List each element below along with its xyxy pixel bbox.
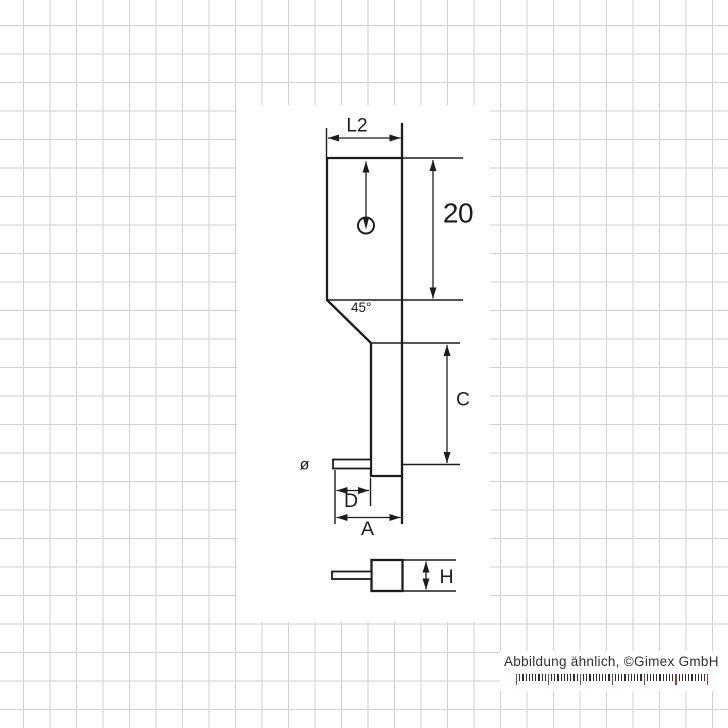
ruler-minor-tick [679, 674, 680, 681]
grid-background: L2 20 45° C ø D A H Abbildung ähnlich, ©… [0, 0, 728, 728]
caption-text: Abbildung ähnlich, ©Gimex GmbH [504, 654, 719, 669]
ruler-minor-tick [682, 674, 683, 681]
ruler-minor-tick [519, 674, 520, 681]
ruler-minor-tick [634, 674, 635, 681]
ruler-minor-tick [551, 674, 552, 681]
scale-ruler [516, 674, 709, 685]
ruler-minor-tick [522, 674, 523, 681]
dim-label-l2: L2 [346, 116, 367, 137]
ruler-minor-tick [602, 674, 603, 681]
ruler-minor-tick [593, 674, 594, 681]
ruler-minor-tick [656, 674, 657, 681]
ruler-minor-tick [631, 674, 632, 681]
ruler-minor-tick [561, 674, 562, 681]
technical-drawing: L2 20 45° C ø D A H [0, 0, 728, 728]
dim-label-h: H [439, 566, 453, 588]
dim-label-a: A [361, 518, 374, 540]
ruler-minor-tick [666, 674, 667, 681]
ruler-minor-tick [545, 674, 546, 681]
ruler-minor-tick [535, 674, 536, 681]
ruler-minor-tick [698, 674, 699, 681]
ruler-minor-tick [538, 674, 539, 681]
ruler-minor-tick [624, 674, 625, 681]
ruler-minor-tick [577, 674, 578, 681]
ruler-minor-tick [653, 674, 654, 681]
ruler-minor-tick [650, 674, 651, 681]
dim-label-45deg: 45° [351, 300, 371, 315]
ruler-minor-tick [688, 674, 689, 681]
ruler-minor-tick [640, 674, 641, 681]
ruler-minor-tick [573, 674, 574, 681]
dim-label-20: 20 [443, 198, 473, 229]
ruler-minor-tick [526, 674, 527, 681]
ruler-minor-tick [618, 674, 619, 681]
ruler-minor-tick [701, 674, 702, 681]
ruler-minor-tick [557, 674, 558, 681]
ruler-minor-tick [589, 674, 590, 681]
ruler-minor-tick [672, 674, 673, 681]
ruler-major-tick [644, 674, 645, 685]
diameter-symbol: ø [300, 457, 310, 474]
ruler-minor-tick [583, 674, 584, 681]
ruler-minor-tick [637, 674, 638, 681]
ruler-minor-tick [567, 674, 568, 681]
ruler-major-tick [516, 674, 517, 685]
dim-label-c: C [456, 390, 470, 411]
ruler-minor-tick [621, 674, 622, 681]
ruler-minor-tick [695, 674, 696, 681]
ruler-minor-tick [685, 674, 686, 681]
ruler-minor-tick [663, 674, 664, 681]
ruler-major-tick [675, 674, 676, 685]
measuring-point-arrowhead-icon [363, 219, 369, 230]
ruler-minor-tick [596, 674, 597, 681]
ruler-minor-tick [599, 674, 600, 681]
tip-pin-outline [332, 572, 372, 580]
ruler-minor-tick [659, 674, 660, 681]
ruler-minor-tick [542, 674, 543, 681]
ruler-minor-tick [586, 674, 587, 681]
tip-body-outline [372, 560, 403, 591]
ruler-minor-tick [691, 674, 692, 681]
ruler-minor-tick [529, 674, 530, 681]
ruler-major-tick [612, 674, 613, 685]
ruler-minor-tick [564, 674, 565, 681]
ruler-minor-tick [628, 674, 629, 681]
ruler-major-tick [548, 674, 549, 685]
probe-pin-outline [333, 460, 371, 469]
ruler-minor-tick [615, 674, 616, 681]
ruler-minor-tick [608, 674, 609, 681]
ruler-major-tick [580, 674, 581, 685]
ruler-minor-tick [704, 674, 705, 681]
ruler-minor-tick [669, 674, 670, 681]
footer-strip: Abbildung ähnlich, ©Gimex GmbH [500, 651, 728, 691]
ruler-major-tick [707, 674, 708, 685]
probe-body-outline [327, 158, 402, 476]
ruler-minor-tick [532, 674, 533, 681]
dim-label-d: D [344, 490, 358, 512]
ruler-minor-tick [605, 674, 606, 681]
ruler-minor-tick [554, 674, 555, 681]
ruler-minor-tick [570, 674, 571, 681]
ruler-minor-tick [647, 674, 648, 681]
